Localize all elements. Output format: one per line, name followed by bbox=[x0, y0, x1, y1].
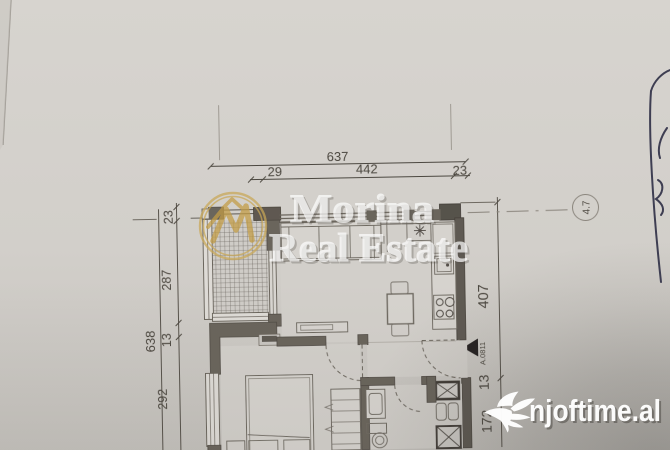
svg-text:njoftime.al: njoftime.al bbox=[529, 393, 661, 428]
svg-text:4.7: 4.7 bbox=[581, 200, 592, 215]
svg-text:Real Estate: Real Estate bbox=[269, 225, 468, 270]
svg-text:23: 23 bbox=[452, 163, 467, 178]
svg-text:637: 637 bbox=[327, 149, 349, 164]
svg-text:23: 23 bbox=[162, 210, 176, 224]
svg-text:29: 29 bbox=[267, 164, 282, 179]
svg-text:442: 442 bbox=[356, 161, 378, 176]
